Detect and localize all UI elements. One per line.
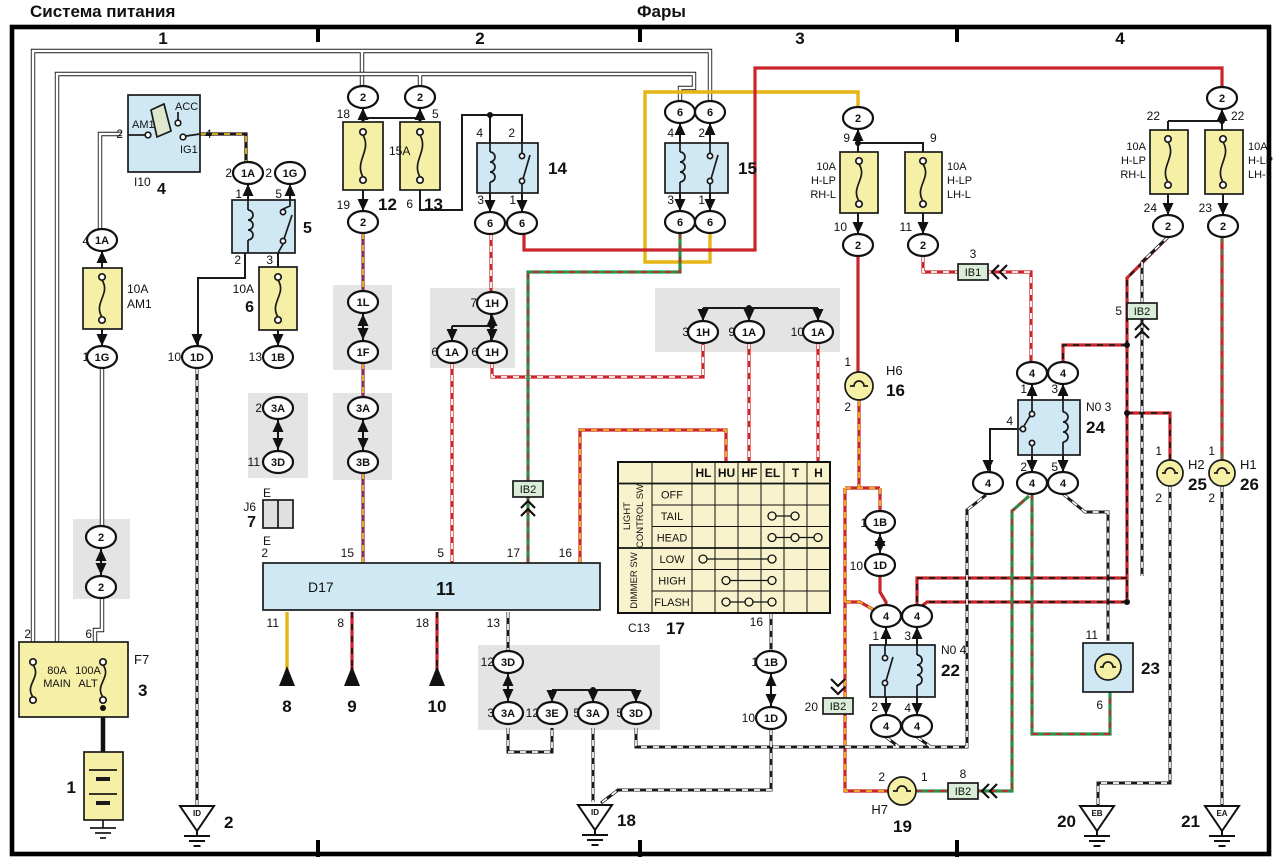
label: 12 xyxy=(526,706,540,720)
label: 12 xyxy=(378,195,397,214)
label: D17 xyxy=(308,579,334,595)
label: 2 xyxy=(1020,460,1027,474)
ib-label: IB2 xyxy=(520,484,537,496)
connector-4: 4 xyxy=(1017,472,1047,494)
label: 1 xyxy=(1155,444,1162,458)
label: H-LP xyxy=(1248,155,1273,167)
label: 1 xyxy=(1020,382,1027,396)
label: 14 xyxy=(548,159,567,178)
contact-point xyxy=(699,555,707,563)
label: 15 xyxy=(341,546,355,560)
connector-4: 4 xyxy=(871,715,901,737)
connector-arrow-icon xyxy=(853,222,864,234)
contact-point xyxy=(814,534,822,542)
connector-code: 1D xyxy=(190,352,204,364)
label: 19 xyxy=(893,817,912,836)
connector-6: 6 xyxy=(695,101,725,123)
relay-14 xyxy=(477,143,538,193)
connector-code: 4 xyxy=(914,611,921,623)
ib-chevrons-icon xyxy=(831,679,845,694)
label: 2 xyxy=(508,126,515,140)
label: 10A xyxy=(233,282,254,296)
connector-code: 1A xyxy=(241,168,255,180)
connector-1d: 1D xyxy=(756,707,786,729)
connector-6: 6 xyxy=(665,101,695,123)
label: 3 xyxy=(667,193,674,207)
label: 9 xyxy=(930,131,937,145)
connector-2: 2 xyxy=(1153,215,1183,237)
junction-dot xyxy=(746,305,752,311)
connector-arrow-icon xyxy=(675,123,686,135)
label: LH-L xyxy=(1248,169,1272,181)
connector-1h: 1H xyxy=(688,321,718,343)
label: AM1 xyxy=(127,297,152,311)
connector-arrow-icon xyxy=(705,123,716,135)
light-control-switch-table: HLHUHFELTHOFFTAILHEADLOWHIGHFLASHLIGHTCO… xyxy=(618,462,830,613)
label: 2 xyxy=(265,166,272,180)
label: 10 xyxy=(791,325,805,339)
connector-code: 4 xyxy=(883,611,890,623)
connector-4: 4 xyxy=(1017,362,1047,384)
connector-1a: 1A xyxy=(233,162,263,184)
connector-arrow-icon xyxy=(983,460,994,472)
label: 13 xyxy=(424,195,443,214)
label: 1 xyxy=(67,778,76,797)
connector-6: 6 xyxy=(695,211,725,233)
label: 2 xyxy=(116,127,123,141)
connector-arrow-icon xyxy=(358,199,369,211)
label: 1 xyxy=(751,655,758,669)
connector-2: 2 xyxy=(86,576,116,598)
table-row-label: OFF xyxy=(661,489,683,501)
inline-connector-ib2: IB2 xyxy=(823,679,853,714)
label: 10 xyxy=(850,559,864,573)
label: 10A xyxy=(947,161,967,173)
connector-code: 6 xyxy=(519,218,525,230)
label: 18 xyxy=(617,811,636,830)
label: H-LP xyxy=(811,175,836,187)
label: 1 xyxy=(82,350,89,364)
label: 3 xyxy=(266,253,273,267)
connector-4: 4 xyxy=(1048,472,1078,494)
label: 13 xyxy=(249,350,263,364)
connector-code: 2 xyxy=(1165,221,1171,233)
connector-code: 4 xyxy=(1060,478,1067,490)
title-headlights: Фары xyxy=(637,2,686,21)
label: ALT xyxy=(78,678,98,690)
label: 24 xyxy=(1086,418,1105,437)
label: 9 xyxy=(347,697,356,716)
connector-code: 3A xyxy=(586,708,600,720)
ground-symbol-eb: EB xyxy=(1080,806,1114,846)
label: 20 xyxy=(1057,812,1076,831)
label: 8 xyxy=(282,697,291,716)
table-col-header: HU xyxy=(718,466,735,480)
connector-6: 6 xyxy=(475,212,505,234)
label: 4 xyxy=(157,181,166,198)
fusible-link-f7 xyxy=(19,642,128,717)
table-row-label: HEAD xyxy=(657,532,688,544)
table-col-header: T xyxy=(792,466,800,480)
contact-point xyxy=(791,512,799,520)
table-col-header: HF xyxy=(742,466,758,480)
label: 4 xyxy=(82,234,89,248)
section-4: 4 xyxy=(1115,29,1125,48)
label: 13 xyxy=(487,616,501,630)
label: 3 xyxy=(904,629,911,643)
label: 4 xyxy=(904,701,911,715)
fuse-hlp-lh-2 xyxy=(1205,130,1243,194)
label: 22 xyxy=(941,661,960,680)
label: LH-L xyxy=(947,189,971,201)
junction-dot xyxy=(1124,342,1130,348)
connector-code: 1A xyxy=(95,235,109,247)
junction-dot xyxy=(489,323,495,329)
label: 2 xyxy=(234,253,241,267)
connector-6: 6 xyxy=(507,212,537,234)
connector-code: 1H xyxy=(696,327,710,339)
label: 11 xyxy=(436,579,455,599)
lamp-unit-23 xyxy=(1083,643,1133,692)
contact-point xyxy=(768,577,776,585)
connector-1g: 1G xyxy=(87,346,117,368)
label: 17 xyxy=(507,546,521,560)
connector-arrow-icon xyxy=(918,222,929,234)
label: 5 xyxy=(1051,460,1058,474)
fuse-6 xyxy=(259,267,297,330)
relay-5 xyxy=(232,200,295,253)
junction-dot xyxy=(417,115,423,121)
label: 9 xyxy=(728,325,735,339)
connector-code: 2 xyxy=(98,582,104,594)
table-row-label: HIGH xyxy=(658,575,686,587)
junction-dot xyxy=(100,705,106,711)
connector-code: 3A xyxy=(501,708,515,720)
ground-symbol-id: ID xyxy=(578,805,612,845)
table-col-header: EL xyxy=(765,466,780,480)
contact-point xyxy=(768,512,776,520)
label: I10 xyxy=(134,175,151,189)
fuse-10a-am1 xyxy=(83,268,122,329)
label: 7 xyxy=(470,296,477,310)
connector-code: 1G xyxy=(95,352,110,364)
label: 18 xyxy=(337,107,351,121)
label: 4 xyxy=(205,127,212,141)
label: 10 xyxy=(168,350,182,364)
label: 12 xyxy=(481,655,495,669)
connector-1a: 1A xyxy=(437,341,467,363)
label: MAIN xyxy=(43,678,71,690)
label: 5 xyxy=(616,706,623,720)
section-1: 1 xyxy=(158,29,167,48)
contact-point xyxy=(722,598,730,606)
connector-code: 1D xyxy=(764,713,778,725)
connector-arrow-icon xyxy=(285,184,296,196)
label: 10A xyxy=(1248,141,1268,153)
section-3: 3 xyxy=(795,29,804,48)
label: 6 xyxy=(85,627,92,641)
table-row-label: LOW xyxy=(659,554,685,566)
connector-1f: 1F xyxy=(348,341,378,363)
connector-2: 2 xyxy=(86,526,116,548)
connector-code: 4 xyxy=(883,721,890,733)
connector-code: 1B xyxy=(271,352,285,364)
connector-4: 4 xyxy=(973,472,1003,494)
connector-1b: 1B xyxy=(263,346,293,368)
connector-3d: 3D xyxy=(621,702,651,724)
label: 5 xyxy=(432,107,439,121)
bulb-h6 xyxy=(845,372,873,400)
bulb-h1 xyxy=(1209,460,1235,486)
label: E xyxy=(263,486,271,500)
fuse-hlp-lh xyxy=(905,152,942,213)
connector-code: 1A xyxy=(445,347,459,359)
connector-code: 3D xyxy=(501,657,515,669)
ib-label: IB2 xyxy=(830,701,847,713)
label: 2 xyxy=(255,401,262,415)
label: 2 xyxy=(1155,491,1162,505)
circuit-continuation-arrow xyxy=(344,666,360,686)
connector-4: 4 xyxy=(1048,362,1078,384)
connector-code: 1G xyxy=(283,168,298,180)
connector-6: 6 xyxy=(665,211,695,233)
label: 6 xyxy=(431,345,438,359)
connector-4: 4 xyxy=(902,605,932,627)
table-group-label: LIGHT xyxy=(622,502,633,530)
fuse-hlp-rh xyxy=(840,152,878,213)
connector-4: 4 xyxy=(902,715,932,737)
connector-arrow-icon xyxy=(881,627,892,639)
label: 1 xyxy=(235,187,242,201)
connector-2: 2 xyxy=(908,234,938,256)
label: 3 xyxy=(1051,382,1058,396)
connector-code: 3D xyxy=(629,708,643,720)
junction-dot xyxy=(855,140,861,146)
label: 11 xyxy=(900,220,913,234)
connector-3a: 3A xyxy=(493,702,523,724)
label: 8 xyxy=(960,767,967,781)
connector-code: 6 xyxy=(487,218,493,230)
connector-arrow-icon xyxy=(881,703,892,715)
ground-code: EA xyxy=(1216,809,1227,818)
connector-arrow-icon xyxy=(1058,460,1069,472)
ib-label: IB2 xyxy=(1134,306,1151,318)
wiring-diagram-page: { "titles":{"left":"Система питания","ri… xyxy=(0,0,1280,866)
connector-arrow-icon xyxy=(192,334,203,346)
label: 1 xyxy=(844,355,851,369)
label: 9 xyxy=(843,131,850,145)
label: 2 xyxy=(225,166,232,180)
label: 1 xyxy=(1208,444,1215,458)
connector-1h: 1H xyxy=(477,292,507,314)
junction-dot xyxy=(487,112,493,118)
connector-1d: 1D xyxy=(865,554,895,576)
relay-24 xyxy=(1018,400,1080,455)
ib-label: IB1 xyxy=(965,267,982,279)
connector-1h: 1H xyxy=(477,341,507,363)
label: 11 xyxy=(267,616,280,630)
label: 11 xyxy=(1086,628,1099,642)
label: C13 xyxy=(628,621,650,635)
connector-code: 1D xyxy=(873,560,887,572)
connector-code: 2 xyxy=(855,240,861,252)
battery-1 xyxy=(84,752,123,838)
label: 6 xyxy=(406,197,413,211)
connector-2: 2 xyxy=(348,86,378,108)
label: 2 xyxy=(24,627,31,641)
label: 2 xyxy=(261,546,268,560)
connector-code: 4 xyxy=(1029,368,1036,380)
connector-code: 4 xyxy=(914,721,921,733)
connector-code: 3D xyxy=(271,457,285,469)
connector-1l: 1L xyxy=(348,291,378,313)
label: 23 xyxy=(1199,201,1213,215)
connector-3b: 3B xyxy=(348,451,378,473)
circuit-continuation-arrow xyxy=(279,666,295,686)
connector-arrow-icon xyxy=(97,334,108,346)
label: 23 xyxy=(1141,659,1160,678)
connector-arrow-icon xyxy=(1218,203,1229,215)
connector-code: 3E xyxy=(545,708,558,720)
connector-2: 2 xyxy=(1207,87,1237,109)
connector-2: 2 xyxy=(348,211,378,233)
label: 15 xyxy=(738,159,757,178)
connector-1a: 1A xyxy=(803,321,833,343)
connector-arrow-icon xyxy=(1027,460,1038,472)
connector-code: 2 xyxy=(98,532,104,544)
circuit-continuation-arrow xyxy=(429,666,445,686)
connector-2: 2 xyxy=(843,234,873,256)
bulb-h7 xyxy=(888,777,916,805)
label: 5 xyxy=(437,546,444,560)
junction-dot xyxy=(360,115,366,121)
contact-point xyxy=(768,534,776,542)
label: 21 xyxy=(1181,812,1200,831)
connector-arrow-icon xyxy=(273,334,284,346)
label: 3 xyxy=(970,247,977,261)
contact-point xyxy=(745,598,753,606)
label: 25 xyxy=(1188,475,1207,494)
label: F7 xyxy=(134,652,149,667)
connector-arrow-icon xyxy=(485,200,496,212)
fuse-hlp-rh-2 xyxy=(1150,130,1188,194)
label: RH-L xyxy=(1120,169,1146,181)
connector-code: 2 xyxy=(1219,93,1225,105)
connector-2: 2 xyxy=(1208,215,1238,237)
junction-j6 xyxy=(263,500,293,528)
connector-code: 1B xyxy=(764,657,778,669)
label: 10A xyxy=(816,161,836,173)
label: 24 xyxy=(1144,201,1158,215)
fuse-12 xyxy=(343,122,383,190)
table-col-header: HL xyxy=(696,466,712,480)
contact-point xyxy=(768,555,776,563)
contact-point xyxy=(791,534,799,542)
label: 20 xyxy=(805,700,819,714)
label: AM1 xyxy=(132,119,155,131)
inline-connector-ib1: IB1 xyxy=(958,264,1007,280)
label: 4 xyxy=(667,126,674,140)
label: 11 xyxy=(248,455,261,469)
junction-dot xyxy=(1219,118,1225,124)
connector-code: 6 xyxy=(707,107,713,119)
label: 5 xyxy=(1115,304,1122,318)
connector-code: 1H xyxy=(485,298,499,310)
overlay: IB1IB2IB2IB2IB2HLHUHFELTHOFFTAILHEADLOWH… xyxy=(24,86,1273,846)
connector-arrow-icon xyxy=(675,199,686,211)
label: ACC xyxy=(175,101,198,113)
table-group-label: CONTROL SW xyxy=(635,484,646,548)
connector-arrow-icon xyxy=(1163,203,1174,215)
connector-code: 1F xyxy=(357,347,370,359)
label: H1 xyxy=(1240,457,1257,472)
ground-code: ID xyxy=(193,809,201,818)
connector-1g: 1G xyxy=(275,162,305,184)
bulb-h2 xyxy=(1157,460,1183,486)
connector-arrow-icon xyxy=(1027,384,1038,396)
connector-code: 6 xyxy=(707,217,713,229)
connector-code: 2 xyxy=(360,217,366,229)
ground-code: EB xyxy=(1091,809,1102,818)
connector-arrow-icon xyxy=(243,184,254,196)
table-col-header: H xyxy=(814,466,823,480)
connector-arrow-icon xyxy=(853,129,864,141)
ground-symbol-ea: EA xyxy=(1205,806,1239,846)
label: 1 xyxy=(921,770,928,784)
pair-arrow-down-icon xyxy=(875,541,886,553)
section-2: 2 xyxy=(475,29,484,48)
label: 22 xyxy=(1231,109,1245,123)
table-row-label: FLASH xyxy=(654,597,690,609)
table-row-label: TAIL xyxy=(661,511,683,523)
label: 1 xyxy=(698,193,705,207)
connector-3e: 3E xyxy=(537,702,567,724)
label: 10 xyxy=(742,711,756,725)
connector-2: 2 xyxy=(843,107,873,129)
connector-code: 6 xyxy=(677,217,683,229)
ground-code: ID xyxy=(591,808,599,817)
connector-1d: 1D xyxy=(182,346,212,368)
label: 16 xyxy=(886,381,905,400)
connector-code: 2 xyxy=(417,92,423,104)
contact-point xyxy=(768,598,776,606)
label: 7 xyxy=(247,514,256,531)
label: 3 xyxy=(477,193,484,207)
connector-code: 4 xyxy=(1029,478,1036,490)
table-group-label: DIMMER SW xyxy=(629,552,640,609)
connector-code: 3A xyxy=(356,403,370,415)
connector-arrow-icon xyxy=(517,200,528,212)
label: H7 xyxy=(871,802,888,817)
connector-3d: 3D xyxy=(263,451,293,473)
label: 2 xyxy=(844,400,851,414)
connector-2: 2 xyxy=(405,86,435,108)
label: 16 xyxy=(559,546,573,560)
label: J6 xyxy=(243,500,256,514)
connector-4: 4 xyxy=(871,605,901,627)
label: 100A xyxy=(75,665,101,677)
label: 3 xyxy=(138,681,147,700)
connector-arrow-icon xyxy=(705,199,716,211)
label: RH-L xyxy=(810,189,836,201)
label: 2 xyxy=(878,770,885,784)
label: 2 xyxy=(698,126,705,140)
label: H2 xyxy=(1188,457,1205,472)
connector-code: 1B xyxy=(873,517,887,529)
label: H-LP xyxy=(947,175,972,187)
connector-code: 2 xyxy=(1220,221,1226,233)
label: 16 xyxy=(750,615,764,629)
